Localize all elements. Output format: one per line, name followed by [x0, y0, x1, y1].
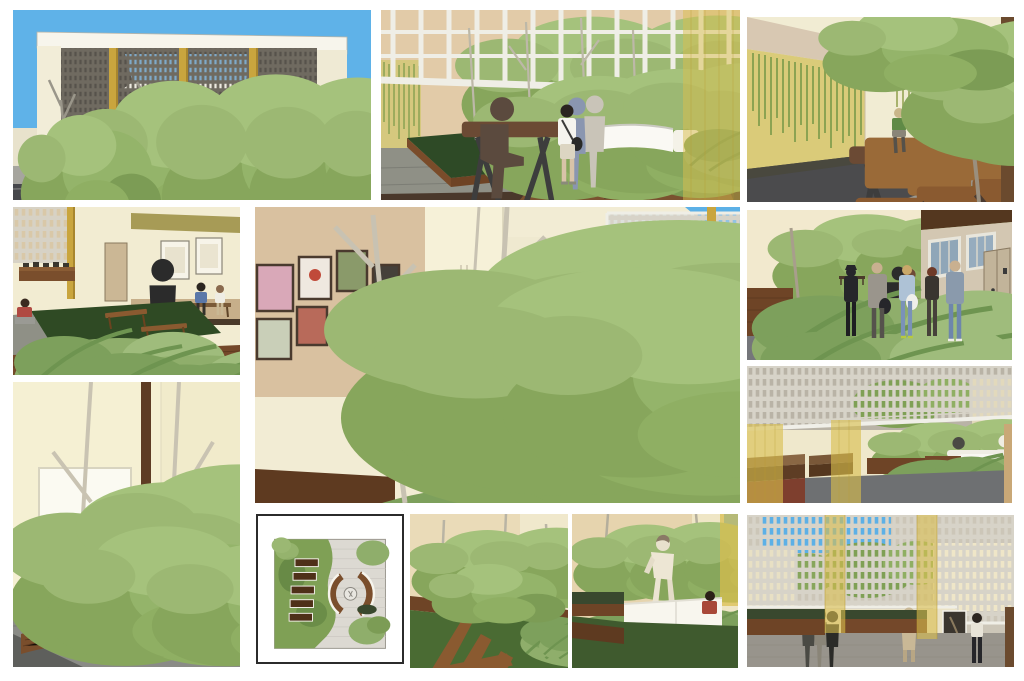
- yellow-mesh: [720, 514, 738, 606]
- yellow-mesh-screen: [683, 10, 740, 200]
- panel-alley-people: [747, 210, 1012, 360]
- panel-lawn-deckchairs: [410, 514, 568, 668]
- yellow-banner: [917, 515, 937, 639]
- panel-colonnade-bar: [747, 366, 1012, 503]
- panel-screened-hall: [747, 515, 1014, 667]
- panel-statue-garden: [255, 207, 740, 503]
- panel-cafe-corner: [747, 17, 1014, 202]
- panel-garden-benches: [13, 207, 240, 375]
- panel-street-elevation: [13, 10, 371, 200]
- panel-courtyard-walk: [13, 382, 240, 667]
- panel-statue-behind-wall: [572, 514, 738, 668]
- lattice-walls: [747, 515, 1014, 607]
- panel-courtyard-loungers: [381, 10, 740, 200]
- yellow-banner: [825, 515, 845, 633]
- panel-site-plan: [256, 514, 404, 664]
- render-collage: [0, 0, 1024, 681]
